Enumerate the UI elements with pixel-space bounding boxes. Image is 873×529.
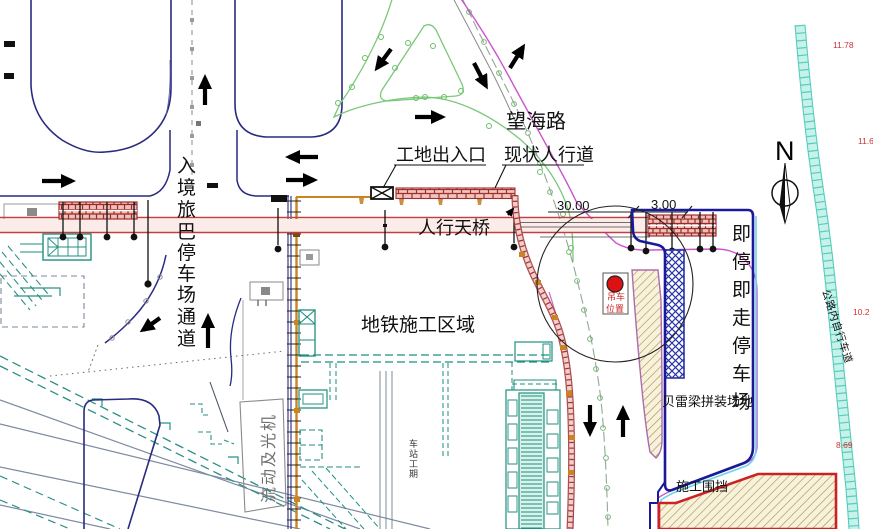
- svg-text:现状人行道: 现状人行道: [504, 145, 594, 165]
- svg-text:入: 入: [177, 156, 196, 177]
- svg-text:人行天桥: 人行天桥: [418, 218, 490, 238]
- svg-text:境: 境: [177, 177, 196, 199]
- svg-text:停: 停: [732, 251, 751, 273]
- svg-text:流动及光机: 流动及光机: [260, 413, 278, 503]
- svg-text:巴: 巴: [177, 222, 196, 243]
- svg-text:场: 场: [177, 284, 196, 306]
- svg-text:期: 期: [409, 469, 418, 479]
- svg-text:车: 车: [732, 363, 751, 385]
- svg-text:11.6: 11.6: [858, 136, 873, 146]
- svg-text:车: 车: [177, 263, 196, 285]
- svg-text:吊车: 吊车: [607, 291, 625, 302]
- svg-text:车: 车: [409, 438, 418, 449]
- svg-text:即: 即: [732, 224, 751, 245]
- svg-text:停: 停: [732, 335, 751, 357]
- svg-text:11.78: 11.78: [833, 40, 854, 50]
- svg-text:地铁施工区域: 地铁施工区域: [361, 314, 475, 336]
- svg-text:即: 即: [732, 280, 751, 301]
- svg-text:位置: 位置: [606, 303, 624, 314]
- svg-text:望海路: 望海路: [506, 110, 566, 133]
- svg-text:8.69: 8.69: [836, 440, 853, 450]
- svg-text:30.00: 30.00: [557, 198, 590, 213]
- svg-text:通: 通: [177, 306, 196, 328]
- svg-text:场: 场: [732, 391, 751, 413]
- svg-text:走: 走: [732, 307, 751, 329]
- svg-text:站: 站: [409, 448, 418, 459]
- svg-text:N: N: [775, 136, 795, 166]
- svg-text:停: 停: [177, 242, 196, 264]
- svg-text:10.2: 10.2: [853, 307, 870, 317]
- svg-text:工地出入口: 工地出入口: [396, 145, 486, 165]
- svg-text:旅: 旅: [177, 199, 196, 221]
- svg-text:施工围挡: 施工围挡: [676, 479, 728, 494]
- svg-text:工: 工: [409, 459, 418, 469]
- svg-text:道: 道: [177, 328, 196, 350]
